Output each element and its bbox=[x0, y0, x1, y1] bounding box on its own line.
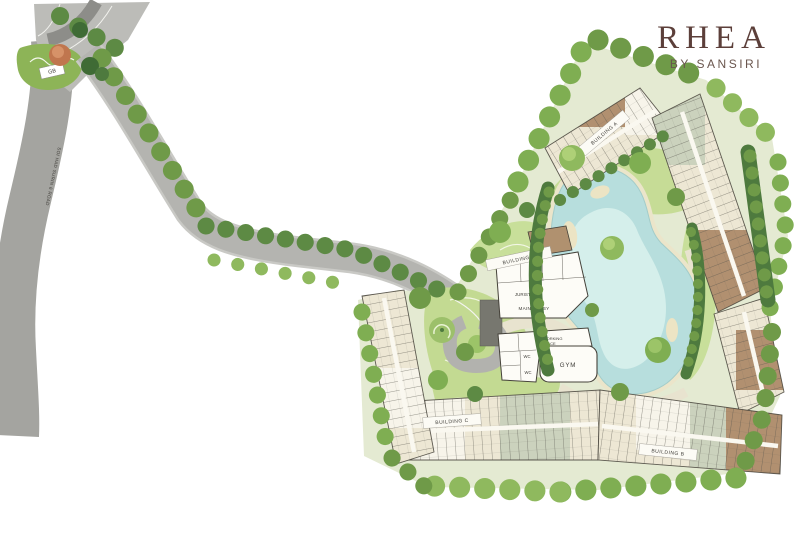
tree bbox=[95, 67, 109, 81]
swirl-garden bbox=[429, 317, 455, 343]
tree bbox=[72, 22, 88, 38]
tree bbox=[456, 343, 474, 361]
tree bbox=[611, 383, 629, 401]
tree-highlight bbox=[562, 147, 576, 161]
tree bbox=[519, 202, 535, 218]
tree bbox=[467, 386, 483, 402]
brand-name: RHEA bbox=[657, 20, 771, 56]
tree-highlight bbox=[648, 339, 662, 353]
tree bbox=[585, 303, 599, 317]
label-gym: GYM bbox=[560, 362, 577, 369]
tree bbox=[409, 287, 431, 309]
tree bbox=[489, 221, 511, 243]
label-wc-upper: WC bbox=[524, 354, 531, 359]
garden-center bbox=[440, 328, 444, 332]
label-wc-lower: WC bbox=[525, 370, 532, 375]
site-plan-svg: SOI HAD SURIN 6 ROAD GB bbox=[0, 0, 800, 533]
sand-beach bbox=[666, 318, 678, 342]
tree-highlight bbox=[603, 238, 615, 250]
tree bbox=[428, 370, 448, 390]
brand-tagline: BY SANSIRI bbox=[670, 57, 762, 71]
tree bbox=[667, 188, 685, 206]
site-plan: SOI HAD SURIN 6 ROAD GB bbox=[0, 0, 800, 533]
tree-highlight bbox=[52, 46, 64, 58]
tree bbox=[629, 152, 651, 174]
brand-logo: RHEA BY SANSIRI bbox=[657, 20, 771, 71]
